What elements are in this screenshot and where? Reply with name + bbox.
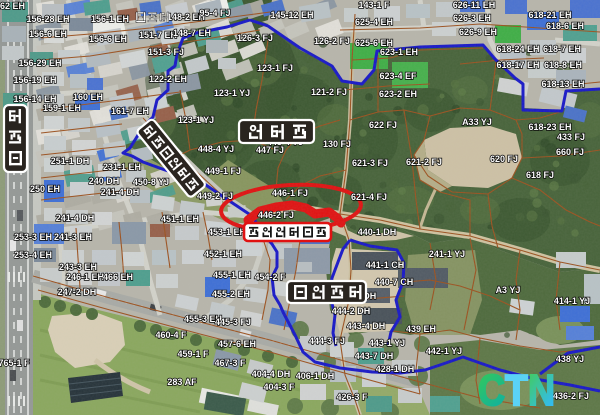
svg-text:CTN: CTN bbox=[478, 366, 555, 415]
